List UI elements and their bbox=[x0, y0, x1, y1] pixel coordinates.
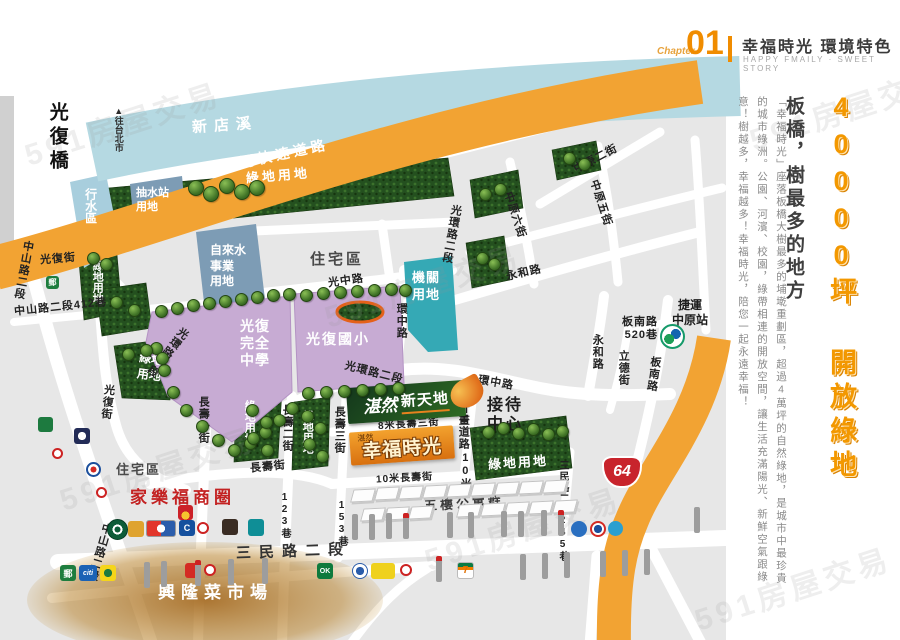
tree-icon bbox=[273, 414, 286, 427]
poi-marker bbox=[352, 514, 358, 540]
drugstore-icon bbox=[248, 519, 264, 536]
page: 591房屋交易 591房屋交易 591房屋交易 591房屋交易 591房屋交易 … bbox=[0, 0, 900, 640]
bank-icon bbox=[571, 521, 587, 537]
poi-marker bbox=[144, 562, 150, 588]
bus-stop-icon bbox=[52, 448, 63, 459]
tree-icon bbox=[212, 434, 225, 447]
tree-icon bbox=[563, 152, 576, 165]
poi-marker bbox=[518, 511, 524, 537]
apartment-building bbox=[446, 483, 472, 497]
road-label-bannan520: 板南路 520巷 bbox=[622, 316, 658, 342]
mrt-station-label: 捷運 中原站 bbox=[672, 298, 708, 328]
tree-icon bbox=[196, 420, 209, 433]
tree-icon bbox=[314, 422, 327, 435]
tree-icon bbox=[219, 178, 235, 194]
poi-marker bbox=[694, 507, 700, 533]
tree-icon bbox=[286, 402, 299, 415]
tree-icon bbox=[356, 384, 369, 397]
apartment-building bbox=[408, 505, 434, 519]
tree-icon bbox=[128, 304, 141, 317]
poi-marker bbox=[644, 549, 650, 575]
ok-mart-icon: OK bbox=[317, 563, 333, 579]
tree-icon bbox=[249, 180, 265, 196]
bank-icon bbox=[38, 417, 53, 432]
header-divider bbox=[728, 36, 732, 62]
tree-icon bbox=[316, 450, 329, 463]
tree-icon bbox=[301, 410, 314, 423]
bank-icon bbox=[74, 428, 90, 444]
page-title: 幸福時光 環境特色 bbox=[742, 33, 892, 57]
tree-icon bbox=[140, 344, 153, 357]
tree-icon bbox=[167, 386, 180, 399]
tree-icon bbox=[87, 252, 100, 265]
tree-icon bbox=[156, 352, 169, 365]
tree-icon bbox=[300, 289, 313, 302]
tree-icon bbox=[374, 383, 387, 396]
tree-icon bbox=[578, 158, 591, 171]
tree-icon bbox=[303, 438, 316, 451]
tree-icon bbox=[203, 186, 219, 202]
tree-icon bbox=[556, 425, 569, 438]
tree-icon bbox=[158, 364, 171, 377]
tree-icon bbox=[542, 428, 555, 441]
residential-label: 住宅區 bbox=[116, 462, 161, 479]
carrefour-icon bbox=[146, 520, 176, 537]
tree-icon bbox=[385, 283, 398, 296]
apartment-building bbox=[542, 479, 568, 493]
road-label-changshou3: 長壽三街 bbox=[332, 406, 346, 454]
bus-stop-icon bbox=[96, 487, 107, 498]
tree-icon bbox=[488, 258, 501, 271]
tree-icon bbox=[100, 258, 113, 271]
apartment-building bbox=[350, 488, 376, 502]
fastfood-icon bbox=[178, 505, 193, 520]
chapter-number: 01 bbox=[686, 24, 724, 63]
tree-icon bbox=[188, 180, 204, 196]
residential-label: 住宅區 bbox=[310, 250, 364, 270]
tree-icon bbox=[338, 385, 351, 398]
bus-stop-icon bbox=[400, 564, 412, 576]
tree-icon bbox=[399, 284, 412, 297]
post-office-icon: 郵 bbox=[60, 565, 76, 581]
tree-icon bbox=[283, 288, 296, 301]
tree-icon bbox=[180, 404, 193, 417]
poi-marker bbox=[520, 554, 526, 580]
bus-stop-icon bbox=[204, 564, 216, 576]
poi-marker bbox=[228, 559, 234, 585]
sidebar-headline: 40000坪 開放綠地 bbox=[822, 92, 861, 572]
tree-icon bbox=[479, 188, 492, 201]
tree-icon bbox=[527, 423, 540, 436]
to-taipei-label: ▲往台北市 bbox=[112, 106, 124, 152]
tree-icon bbox=[260, 416, 273, 429]
poi-marker bbox=[622, 550, 628, 576]
apartment-building bbox=[470, 482, 496, 496]
apartment-building bbox=[518, 480, 544, 494]
bank-icon bbox=[590, 521, 606, 537]
pump-station-label: 抽水站 用地 bbox=[136, 186, 169, 215]
tree-icon bbox=[320, 386, 333, 399]
bank-icon bbox=[352, 563, 368, 579]
tree-icon bbox=[228, 444, 241, 457]
agency-land-label: 機關 用地 bbox=[412, 270, 440, 304]
poi-marker bbox=[436, 556, 442, 582]
citibank-icon: citi bbox=[79, 565, 97, 581]
poi-marker bbox=[262, 558, 268, 584]
poi-marker bbox=[468, 512, 474, 538]
mrt-logo-icon bbox=[660, 324, 685, 349]
sidebar-body-text: 「幸福時光」座落板橋大樹最多的埔墘重劃區，超過4萬坪的自然綠地，是城市中最珍貴的… bbox=[733, 96, 790, 596]
tree-icon bbox=[246, 404, 259, 417]
tree-icon bbox=[351, 285, 364, 298]
tree-icon bbox=[267, 289, 280, 302]
tree-icon bbox=[234, 184, 250, 200]
seven-eleven-icon: 7 bbox=[457, 562, 474, 579]
bank-icon bbox=[371, 563, 395, 579]
tree-icon bbox=[187, 299, 200, 312]
apartment-building bbox=[504, 501, 530, 515]
page-subtitle: HAPPY FMAILY · SWEET STORY bbox=[743, 55, 900, 73]
bank-icon: C bbox=[179, 520, 195, 536]
apartment-building bbox=[494, 481, 520, 495]
poi-marker bbox=[386, 513, 392, 539]
flood-zone-label: 行水區 bbox=[82, 188, 98, 224]
tree-icon bbox=[155, 305, 168, 318]
senior-high-label: 光復 完全 中學 bbox=[240, 318, 270, 368]
poi-marker bbox=[403, 513, 409, 539]
market-label: 興隆菜市場 bbox=[158, 582, 273, 604]
poi-marker bbox=[600, 551, 606, 577]
site-name-text: 幸福時光 bbox=[362, 437, 443, 462]
poi-marker bbox=[501, 511, 507, 537]
elementary-label: 光復國小 bbox=[306, 330, 370, 348]
water-utility-label: 自來水 事業 用地 bbox=[210, 243, 246, 290]
tree-icon bbox=[494, 183, 507, 196]
tree-icon bbox=[368, 284, 381, 297]
apartment-building bbox=[374, 486, 400, 500]
tree-icon bbox=[334, 286, 347, 299]
poi-marker bbox=[558, 510, 564, 536]
bus-stop-icon bbox=[197, 522, 209, 534]
cafe-icon bbox=[128, 521, 144, 537]
poi-marker bbox=[161, 561, 167, 587]
tree-icon bbox=[247, 432, 260, 445]
tree-icon bbox=[203, 297, 216, 310]
poi-marker bbox=[542, 553, 548, 579]
tree-icon bbox=[251, 291, 264, 304]
road-label-lide: 立德街 bbox=[616, 350, 630, 386]
apartment-building bbox=[398, 485, 424, 499]
bank-icon bbox=[608, 521, 623, 536]
tree-icon bbox=[482, 426, 495, 439]
road-label-huanzhong: 環中路 bbox=[394, 303, 408, 339]
brand-rest-text: 新天地 bbox=[400, 387, 450, 414]
starbucks-icon bbox=[107, 519, 128, 540]
cafe-icon bbox=[222, 519, 238, 535]
road-label-yonghe: 永和路 bbox=[590, 334, 604, 370]
bank-icon bbox=[86, 462, 101, 477]
poi-marker bbox=[541, 510, 547, 536]
poi-marker bbox=[564, 552, 570, 578]
tree-icon bbox=[317, 287, 330, 300]
tree-icon bbox=[122, 348, 135, 361]
bridge-label: 光復橋 bbox=[44, 102, 69, 174]
poi-marker bbox=[369, 514, 375, 540]
poi-marker bbox=[195, 560, 201, 586]
coop-bank-icon bbox=[100, 565, 116, 581]
tree-icon bbox=[261, 444, 274, 457]
apartment-building bbox=[422, 484, 448, 498]
tree-icon bbox=[235, 293, 248, 306]
tree-icon bbox=[171, 302, 184, 315]
road-label-sanmin2: 三民路二段 bbox=[236, 540, 352, 564]
tree-icon bbox=[497, 422, 510, 435]
road-label-lane123: 123巷 bbox=[278, 492, 291, 539]
tree-icon bbox=[110, 296, 123, 309]
apartment-building bbox=[552, 499, 578, 513]
tree-icon bbox=[392, 382, 405, 395]
tree-icon bbox=[302, 387, 315, 400]
tree-icon bbox=[219, 295, 232, 308]
tree-icon bbox=[512, 427, 525, 440]
post-office-icon: 郵 bbox=[46, 276, 59, 289]
poi-marker bbox=[447, 512, 453, 538]
